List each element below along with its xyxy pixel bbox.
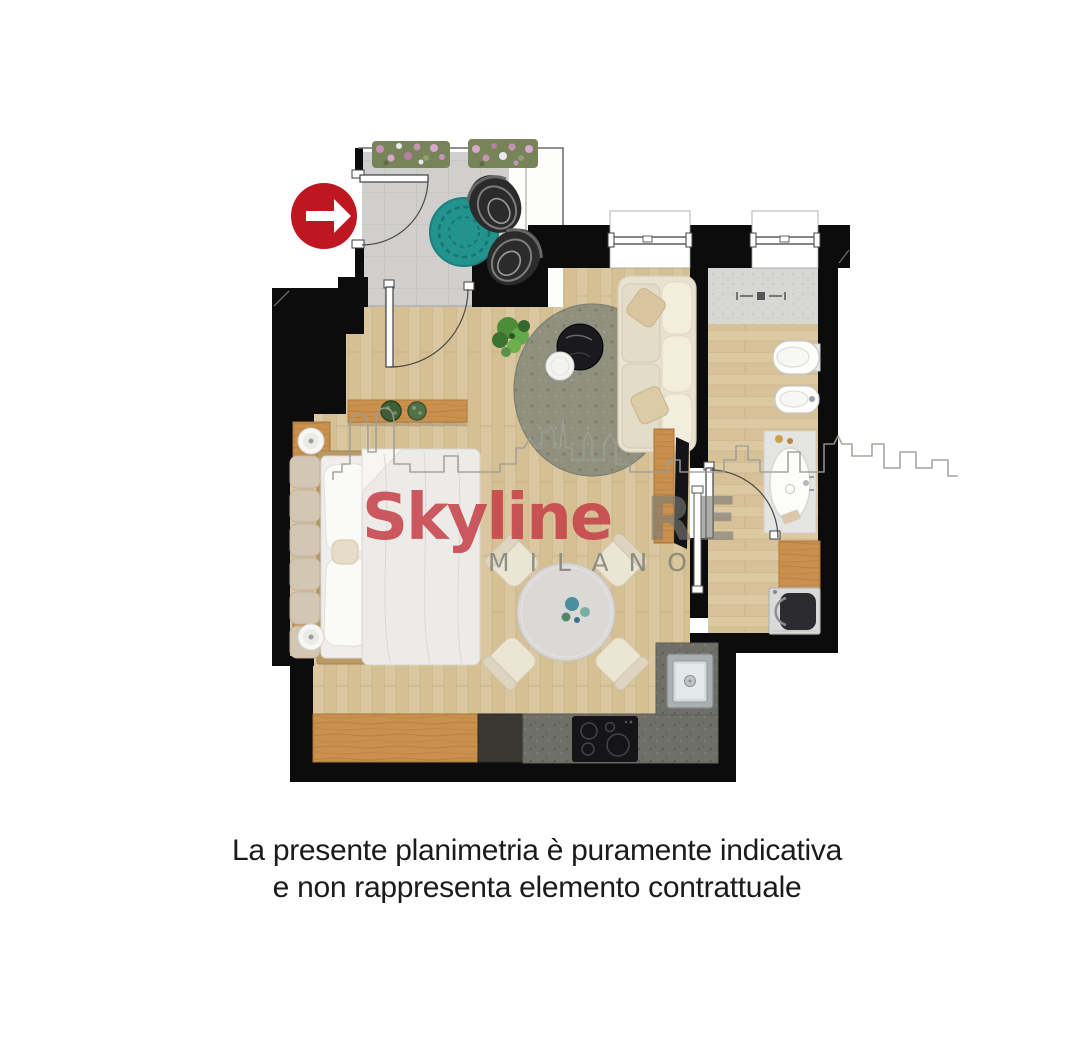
headboard	[290, 524, 320, 556]
wall	[293, 762, 736, 782]
headboard	[290, 490, 320, 522]
dining-table	[517, 563, 615, 661]
watermark-city: MILANO	[488, 550, 707, 575]
kitchen-cabinet	[478, 714, 523, 762]
washing-machine	[769, 588, 820, 634]
cushion	[332, 540, 358, 564]
shelf-shadow	[348, 422, 467, 426]
sofa-back-cushion	[662, 282, 692, 334]
table-decor	[565, 597, 579, 611]
caption: La presente planimetria è puramente indi…	[0, 832, 1074, 906]
sofa-back-cushion	[662, 336, 692, 392]
vanity-basin	[764, 431, 816, 533]
entrance-marker	[291, 183, 357, 249]
table-decor	[574, 617, 580, 623]
toilet	[773, 341, 820, 374]
wall	[818, 268, 838, 653]
wall	[272, 288, 290, 662]
sofa	[618, 276, 696, 452]
terrace-planter	[372, 141, 450, 168]
table-decor	[562, 613, 571, 622]
terrace-planter	[468, 139, 538, 168]
watermark-suffix: RE	[646, 489, 741, 550]
plant-pot	[408, 402, 426, 420]
table-lamp	[298, 428, 324, 454]
headboard	[290, 592, 320, 624]
toiletries	[775, 435, 783, 443]
wall	[355, 246, 364, 290]
kitchen-sideboard	[313, 714, 478, 762]
watermark-brand: Skyline	[362, 486, 611, 550]
table-lamp	[298, 624, 324, 650]
caption-line-2: e non rappresenta elemento contrattuale	[0, 869, 1074, 906]
table-decor	[580, 607, 590, 617]
bathroom-bench	[779, 541, 820, 588]
door-leaf	[386, 287, 393, 367]
headboard	[290, 558, 320, 590]
bidet	[775, 386, 819, 413]
side-table	[546, 352, 574, 380]
kitchen-sink	[667, 654, 713, 708]
wall	[716, 633, 736, 782]
caption-line-1: La presente planimetria è puramente indi…	[0, 832, 1074, 869]
window	[608, 211, 692, 268]
floor-plan-page: Skyline RE MILANO La presente planimetri…	[0, 0, 1074, 1050]
toiletries	[787, 438, 793, 444]
induction-hob	[572, 716, 638, 762]
door-leaf	[360, 175, 428, 182]
headboard	[290, 456, 320, 488]
window	[750, 211, 820, 268]
